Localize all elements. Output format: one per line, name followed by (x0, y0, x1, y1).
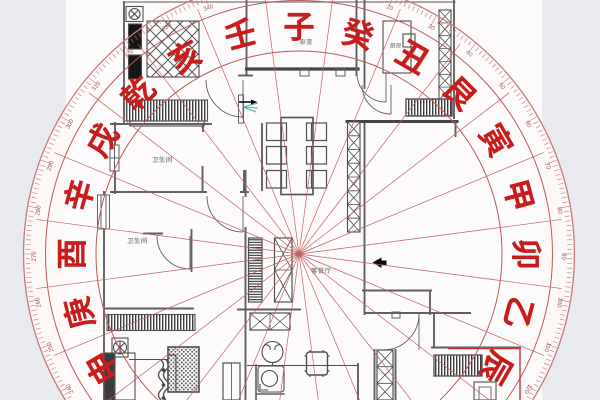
svg-text:270: 270 (32, 251, 38, 262)
svg-text:90: 90 (560, 253, 566, 260)
